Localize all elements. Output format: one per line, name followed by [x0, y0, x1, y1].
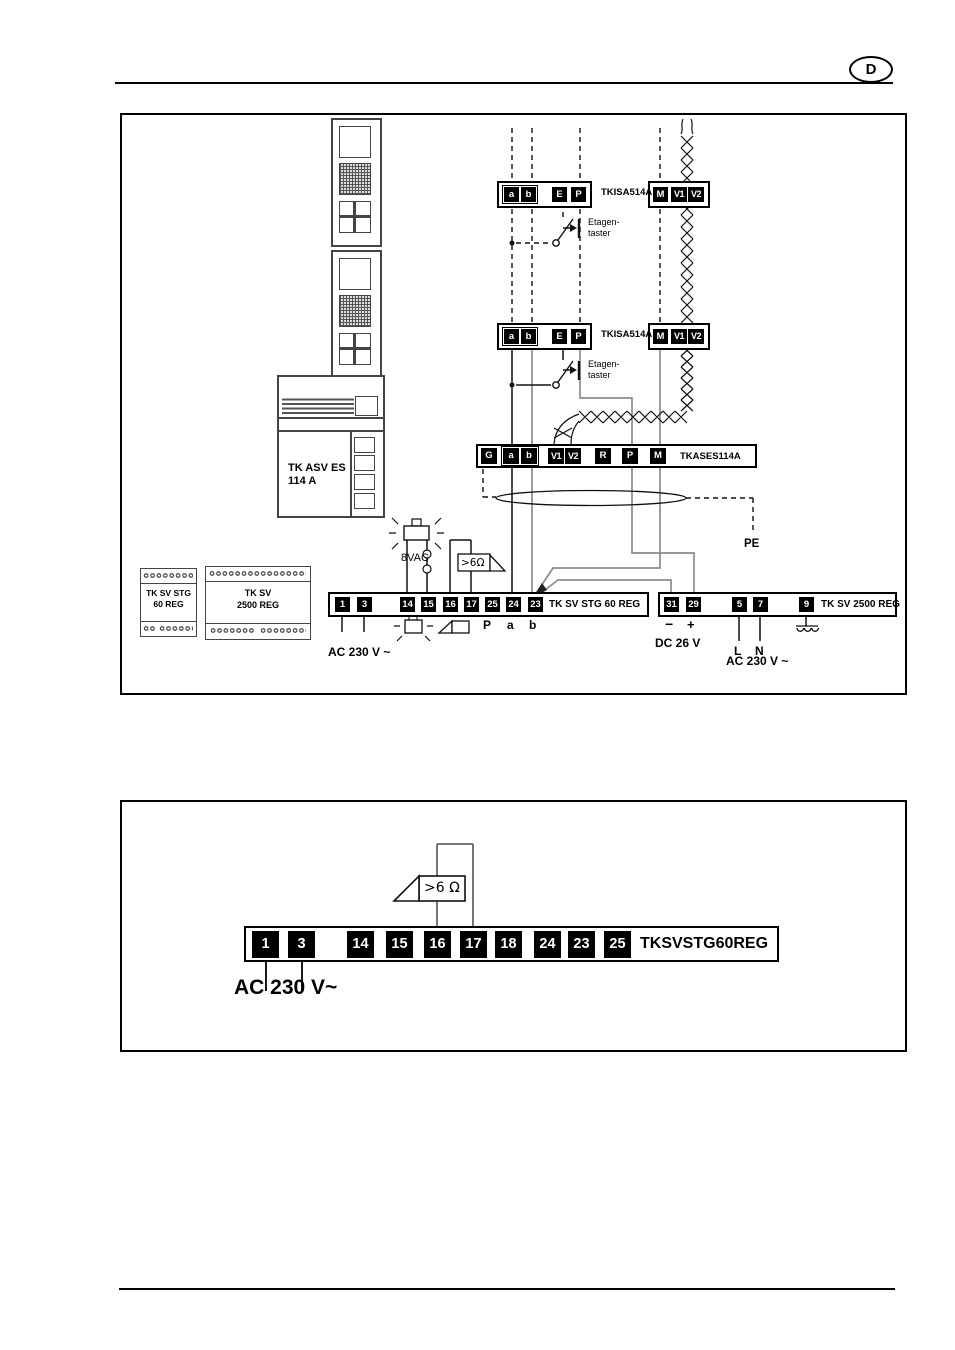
button-grid-icon	[339, 201, 371, 233]
terminal: 14	[347, 931, 374, 958]
indoor-station-unit	[331, 118, 382, 247]
terminal: 9	[799, 597, 814, 612]
header-rule	[115, 82, 893, 84]
manual-page: D	[0, 0, 955, 1350]
block-label: TKISA514A	[601, 329, 652, 340]
earth-icon	[796, 626, 818, 631]
terminal: 17	[464, 597, 479, 612]
floor-call-label: Etagen-taster	[588, 359, 620, 381]
terminal: E	[552, 187, 567, 202]
speaker-impedance-label: >6 Ω	[424, 880, 460, 896]
terminal-strip-tksv2500: 31 29 5 7 9 TK SV 2500 REG	[658, 592, 897, 617]
speaker-impedance-label: >6Ω	[461, 557, 485, 569]
terminal: 1	[252, 931, 279, 958]
terminal: R	[595, 448, 611, 464]
display-area	[339, 126, 371, 158]
footer-rule	[119, 1288, 895, 1290]
terminal: 3	[357, 597, 372, 612]
call-button	[354, 437, 375, 453]
floor-call-label: Etagen-taster	[588, 217, 620, 239]
terminal: V2	[688, 187, 704, 202]
terminal: 18	[495, 931, 522, 958]
block-label: TKASES114A	[680, 451, 741, 462]
terminal: 15	[421, 597, 436, 612]
door-opener-icon	[439, 621, 469, 633]
speaker-grille-icon	[339, 295, 371, 327]
floor-call-switch-icon	[510, 219, 580, 246]
ac-230v-label: AC 230 V ~	[726, 654, 788, 668]
terminal-strip-tksvstg60reg: 1 3 14 15 16 17 18 24 23 25 TKSVSTG60REG	[244, 926, 779, 962]
terminal: M	[653, 329, 668, 344]
terminal: a	[504, 187, 519, 202]
terminal-group: a b	[502, 185, 538, 204]
strip-label: TK SV 2500 REG	[821, 599, 900, 610]
ac-230v-label: AC 230 V~	[234, 976, 337, 1000]
terminal: 14	[400, 597, 415, 612]
minus-label: −	[665, 616, 673, 632]
reg-device-tk-sv-2500: TK SV2500 REG	[205, 566, 311, 640]
terminal-block-mv-1: M V1 V2	[648, 181, 710, 208]
terminal: b	[521, 448, 537, 464]
terminal: V2	[565, 448, 581, 464]
terminal: V1	[671, 329, 687, 344]
terminal: P	[571, 329, 586, 344]
strip-label: TK SV STG 60 REG	[549, 599, 640, 610]
terminal: 15	[386, 931, 413, 958]
terminal: 23	[568, 931, 595, 958]
speaker-grille-icon	[339, 163, 371, 195]
terminal: 1	[335, 597, 350, 612]
terminal: 5	[732, 597, 747, 612]
terminal: 25	[485, 597, 500, 612]
ac-230v-label: AC 230 V ~	[328, 645, 390, 659]
device-label: TK SV2500 REG	[206, 587, 310, 611]
speaker-stripes-icon	[282, 398, 354, 414]
small-panel	[355, 396, 378, 416]
terminal: 24	[534, 931, 561, 958]
terminal: b	[521, 187, 536, 202]
call-button	[354, 474, 375, 490]
button-grid-icon	[339, 333, 371, 365]
plus-label: +	[687, 617, 695, 632]
terminal-block-tkisa-1: a b E P	[497, 181, 592, 208]
terminal-block-tkisa-2: a b E P	[497, 323, 592, 350]
terminal: V2	[688, 329, 704, 344]
language-badge: D	[849, 56, 893, 83]
device-label: TK ASV ES114 A	[288, 462, 346, 488]
pe-label: PE	[744, 538, 759, 550]
terminal: a	[504, 329, 519, 344]
twisted-pair-wires	[554, 119, 693, 444]
strip-label: TKSVSTG60REG	[640, 935, 768, 953]
terminal: 25	[604, 931, 631, 958]
terminal: P	[622, 448, 638, 464]
terminal: 23	[528, 597, 543, 612]
wire-label-b: b	[529, 618, 536, 632]
device-label: TK SV STG60 REG	[141, 588, 196, 610]
wiring-diagram-2	[120, 800, 903, 1048]
terminal: M	[653, 187, 668, 202]
door-station-device: TK ASV ES114 A	[277, 375, 385, 518]
indoor-station-unit	[331, 250, 382, 379]
bell-voltage-label: 8VAC	[401, 552, 429, 564]
terminal: 16	[443, 597, 458, 612]
wire-label-p: P	[483, 618, 491, 632]
terminal: a	[503, 448, 519, 464]
terminal: 3	[288, 931, 315, 958]
terminal: 29	[686, 597, 701, 612]
wire-label-a: a	[507, 618, 514, 632]
terminal-block-mv-2: M V1 V2	[648, 323, 710, 350]
terminal-group: a b	[502, 327, 538, 346]
floor-call-switch-icon	[510, 361, 580, 388]
terminal: E	[552, 329, 567, 344]
terminal: M	[650, 448, 666, 464]
terminal: V1	[548, 448, 564, 464]
terminal-strip-tksvstg60: 1 3 14 15 16 17 25 24 23 TK SV STG 60 RE…	[328, 592, 649, 617]
bell-icon	[389, 518, 444, 549]
terminal: 17	[460, 931, 487, 958]
terminal: 24	[506, 597, 521, 612]
terminal: G	[481, 448, 497, 464]
terminal-block-tkases: G a b V1 V2 R P M TKASES114A	[476, 444, 757, 468]
call-button	[354, 493, 375, 509]
display-area	[339, 258, 371, 290]
reg-device-tk-sv-stg: TK SV STG60 REG	[140, 568, 197, 637]
terminal: 16	[424, 931, 451, 958]
terminal: 31	[664, 597, 679, 612]
dc-26v-label: DC 26 V	[655, 636, 700, 650]
terminal: P	[571, 187, 586, 202]
call-button	[354, 455, 375, 471]
terminal: 7	[753, 597, 768, 612]
terminal: V1	[671, 187, 687, 202]
terminal-group: a b	[501, 446, 539, 466]
cable-shield-icon	[496, 491, 686, 506]
block-label: TKISA514A	[601, 187, 652, 198]
terminal: b	[521, 329, 536, 344]
